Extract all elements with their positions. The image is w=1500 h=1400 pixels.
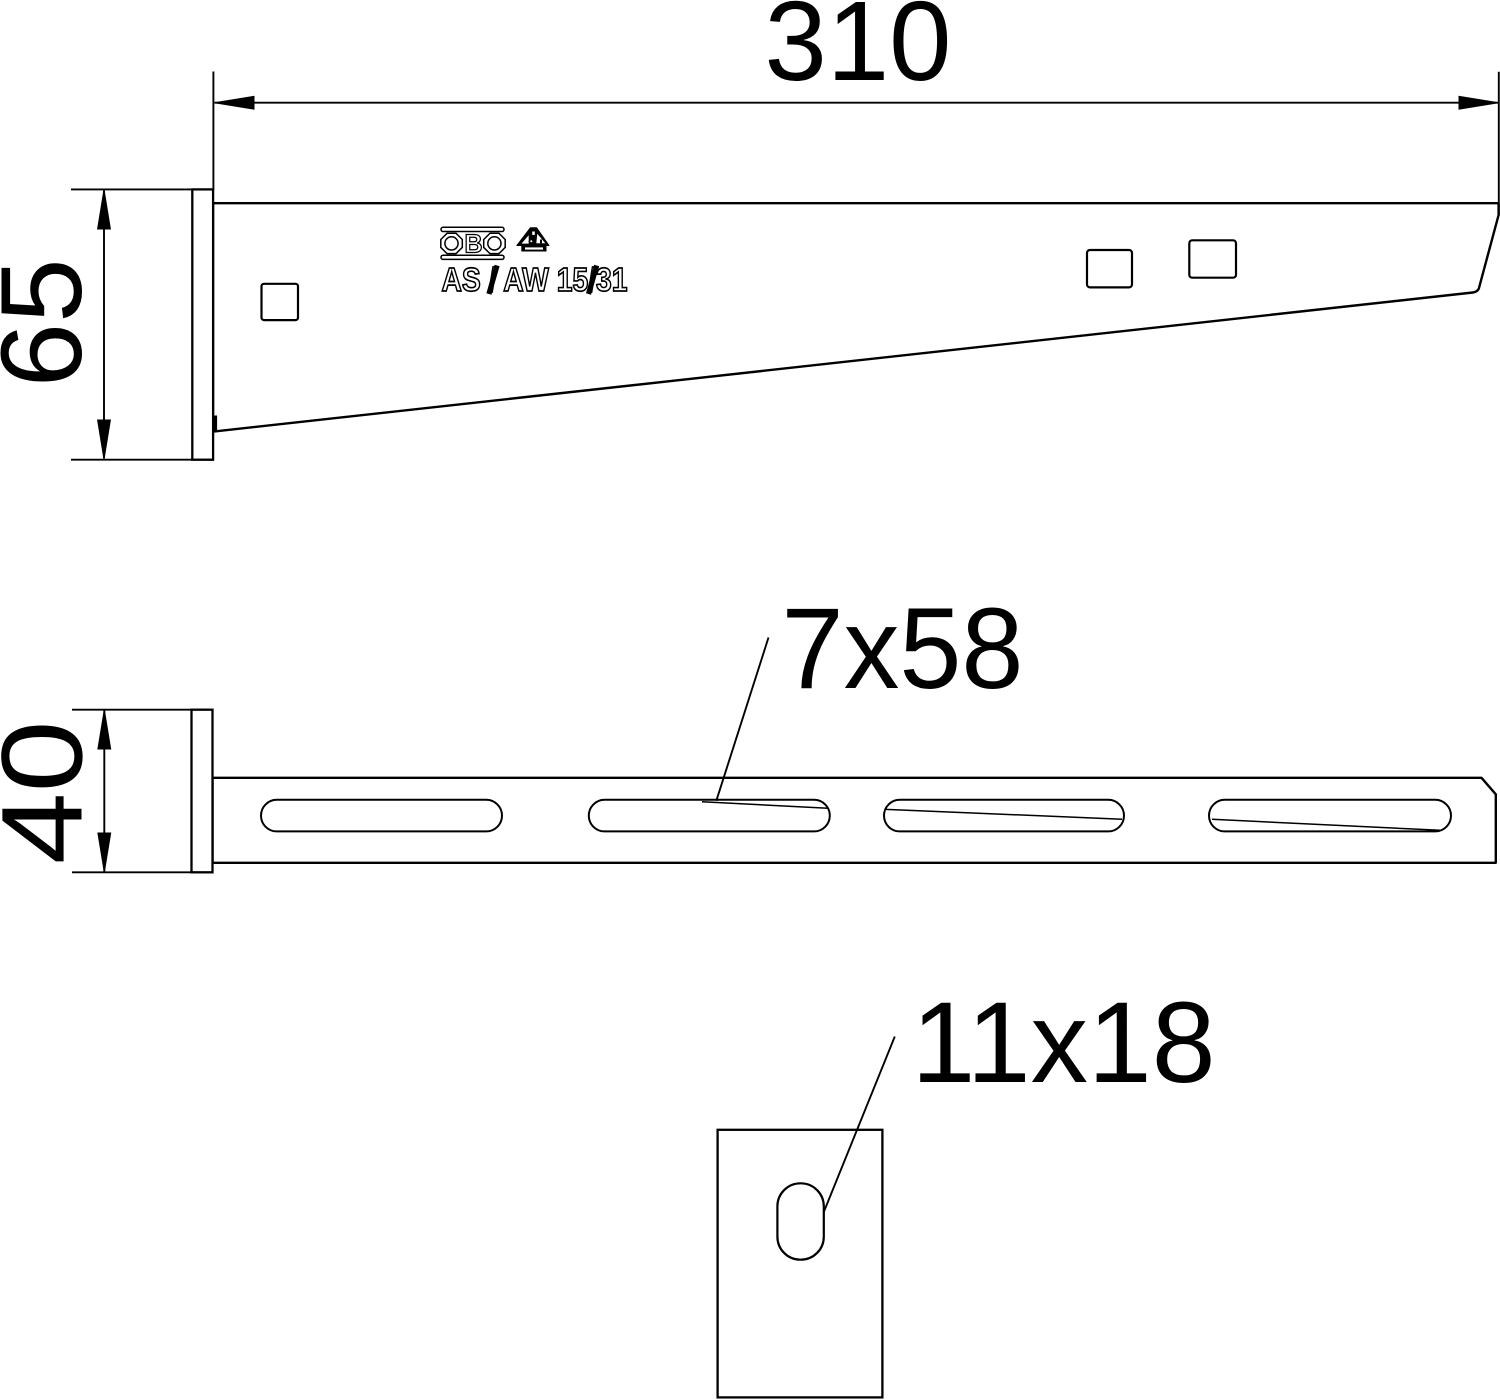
svg-text:7x58: 7x58	[782, 585, 1024, 713]
svg-text:AS / AW 15/31: AS / AW 15/31	[442, 261, 628, 298]
svg-text:65: 65	[0, 258, 106, 387]
svg-text:40: 40	[0, 720, 107, 864]
svg-text:B: B	[465, 229, 483, 259]
svg-text:11x18: 11x18	[912, 979, 1216, 1107]
svg-text:310: 310	[765, 0, 952, 104]
